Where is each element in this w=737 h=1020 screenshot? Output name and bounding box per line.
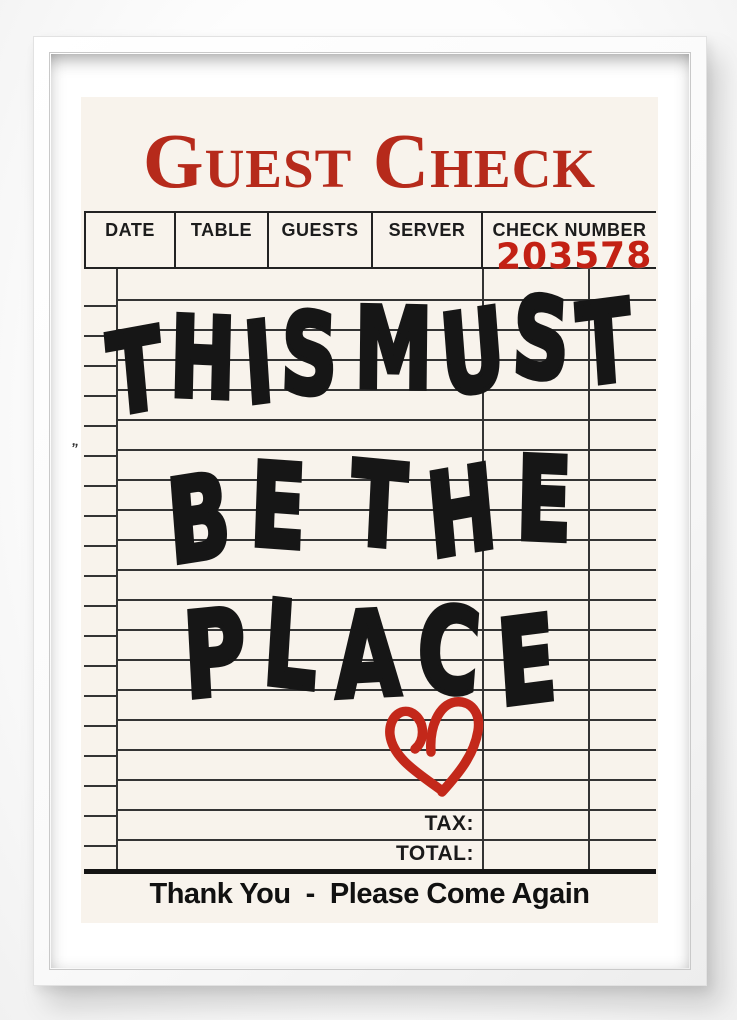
message-letter: H	[423, 450, 501, 577]
message-letter: I	[240, 306, 276, 421]
message-letter: B	[164, 458, 234, 583]
header-cell-guests: GUESTS	[269, 213, 373, 267]
ruled-line-margin-segment	[84, 305, 116, 307]
guest-check-paper: Guest Check DATE TABLE GUESTS SERVER CHE…	[81, 97, 658, 923]
check-header-row: DATE TABLE GUESTS SERVER CHECK NUMBER 20…	[84, 211, 656, 269]
message-letter: T	[348, 446, 409, 567]
ruled-line-margin-segment	[84, 845, 116, 847]
message-letter: P	[181, 592, 249, 716]
ruled-line-margin-segment	[84, 635, 116, 637]
message-letter: L	[260, 584, 321, 708]
message-letter: S	[511, 281, 573, 398]
ruled-line-margin-segment	[84, 695, 116, 697]
ruled-line-margin-segment	[84, 515, 116, 517]
tax-label: TAX:	[281, 811, 474, 837]
ruled-line-margin-segment	[84, 455, 116, 457]
header-cell-server: SERVER	[373, 213, 483, 267]
message-line-2: BETHE	[167, 444, 573, 576]
ruled-line-margin-segment	[84, 815, 116, 817]
picture-frame: ” Guest Check DATE TABLE GUESTS SERVER C…	[33, 36, 707, 986]
message-line-3: PLACE	[161, 586, 578, 718]
ruled-line-margin-segment	[84, 605, 116, 607]
footer-message: Thank You - Please Come Again	[81, 877, 658, 911]
mat-board: ” Guest Check DATE TABLE GUESTS SERVER C…	[51, 54, 689, 968]
message-letter: T	[104, 313, 167, 434]
bottom-thick-rule	[84, 869, 656, 874]
ruled-line-margin-segment	[84, 575, 116, 577]
header-cell-table: TABLE	[176, 213, 269, 267]
message-line-1: THISMUST	[166, 284, 573, 426]
heart-icon	[381, 697, 511, 797]
message-letter: M	[354, 293, 433, 407]
message-letter: H	[169, 302, 237, 417]
ruled-line-margin-segment	[84, 665, 116, 667]
ruled-line-margin-segment	[84, 485, 116, 487]
check-number-stamp: 203578	[496, 238, 653, 276]
total-label: TOTAL:	[281, 841, 474, 867]
message-letter: C	[414, 587, 485, 713]
smudge-mark: ”	[70, 440, 79, 455]
ruled-line-margin-segment	[84, 545, 116, 547]
page-title: Guest Check	[81, 122, 658, 200]
ruled-line-margin-segment	[84, 755, 116, 757]
message-letter: E	[515, 442, 573, 560]
ruled-line-margin-segment	[84, 785, 116, 787]
message-letter: T	[574, 285, 634, 403]
header-cell-date: DATE	[86, 213, 176, 267]
message-letter: E	[249, 448, 308, 568]
message-letter: U	[437, 293, 509, 414]
header-cell-check-number: CHECK NUMBER 203578	[483, 213, 656, 267]
ruled-line-margin-segment	[84, 725, 116, 727]
ruled-line-margin-segment	[84, 425, 116, 427]
message-letter: S	[279, 297, 339, 413]
